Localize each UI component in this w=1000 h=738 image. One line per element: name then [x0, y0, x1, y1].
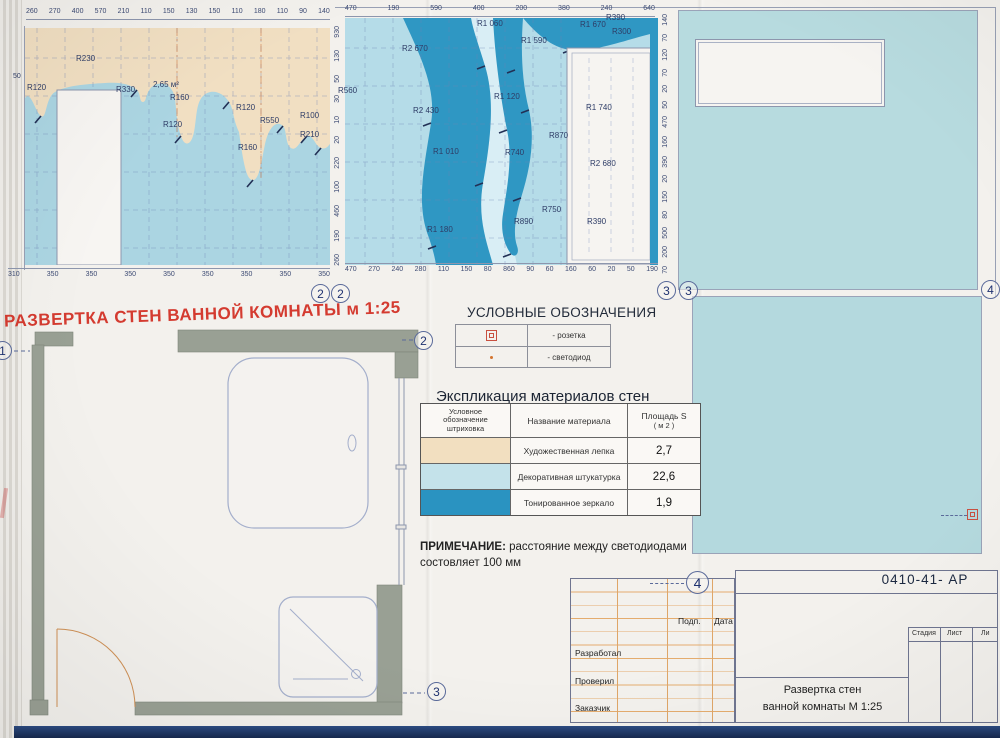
- marker-number: 2: [420, 334, 427, 348]
- column-sign: Подп.: [678, 616, 701, 626]
- dimension-value: 350: [86, 271, 98, 278]
- column-date: Дата: [714, 616, 733, 626]
- material-area: 22,6: [628, 464, 700, 489]
- dimension-value: 10: [334, 116, 341, 124]
- material-swatch: [421, 490, 511, 515]
- shower-tray: [279, 597, 377, 697]
- dimension-value: 150: [461, 266, 473, 273]
- dimension-value: 380: [558, 5, 570, 12]
- dimension-value: 140: [318, 8, 330, 15]
- dimension-value: 400: [72, 8, 84, 15]
- titleblock-gridline: [712, 579, 713, 722]
- material-name: Художественная лепка: [511, 438, 628, 463]
- door-swing: [57, 629, 135, 707]
- dimension-line: [8, 268, 330, 269]
- materials-row: Декоративная штукатурка 22,6: [421, 463, 700, 489]
- radius-label: R120: [236, 103, 255, 112]
- dimension-value: 640: [643, 5, 655, 12]
- dimension-value: 180: [254, 8, 266, 15]
- radius-label: R390: [606, 13, 625, 22]
- dimension-value: 270: [49, 8, 61, 15]
- plan-marker: 2: [414, 331, 433, 350]
- elev1-bottom-dimensions: 310350350350350350350350350: [8, 271, 330, 278]
- column-stage: Стадия: [912, 630, 936, 637]
- dimension-value: 120: [662, 49, 669, 61]
- radius-label: R2 680: [590, 159, 616, 168]
- dimension-value: 60: [588, 266, 596, 273]
- dimension-value: 460: [334, 205, 341, 217]
- radius-label: R1 010: [433, 147, 459, 156]
- legend-table: - розетка - светодиод: [455, 324, 611, 368]
- marker-number: 2: [317, 287, 324, 301]
- dimension-value: 160: [662, 136, 669, 148]
- dimension-value: 160: [565, 266, 577, 273]
- header-text: Площадь S: [641, 411, 686, 421]
- dimension-value: 240: [391, 266, 403, 273]
- dimension-value: 190: [388, 5, 400, 12]
- legend-heading: УСЛОВНЫЕ ОБОЗНАЧЕНИЯ: [467, 305, 656, 320]
- radius-label: R550: [260, 116, 279, 125]
- radius-label: R1 180: [427, 225, 453, 234]
- titleblock-line: [735, 677, 908, 678]
- dimension-line: [345, 263, 658, 264]
- dimension-value: 110: [140, 8, 151, 15]
- materials-row: Тонированное зеркало 1,9: [421, 489, 700, 515]
- dimension-value: 350: [279, 271, 291, 278]
- legend-row: - розетка: [456, 325, 610, 346]
- radius-label: R1 670: [580, 20, 606, 29]
- led-icon: [456, 347, 528, 367]
- mirror-niche: [695, 39, 885, 107]
- dimension-value: 260: [26, 8, 38, 15]
- dimension-value: 200: [662, 246, 669, 258]
- material-area: 1,9: [628, 490, 700, 515]
- table-surface-edge: [14, 726, 1000, 738]
- dimension-value: 20: [334, 136, 341, 144]
- header-hatching: Условное обозначение штриховка: [421, 404, 511, 437]
- radius-label: R1 060: [477, 19, 503, 28]
- elevation-1-wall-drawing: [25, 28, 330, 265]
- radius-label: R330: [116, 85, 135, 94]
- dimension-value: 470: [345, 5, 357, 12]
- radius-label: R1 120: [494, 92, 520, 101]
- dimension-value: 70: [662, 34, 669, 42]
- radius-label: R560: [338, 86, 357, 95]
- column-sheet: Лист: [947, 630, 962, 637]
- dimension-value: 80: [662, 211, 669, 219]
- dimension-value: 50: [662, 101, 669, 109]
- dimension-value: 90: [299, 8, 307, 15]
- section-marker: 4: [981, 280, 1000, 299]
- document-title-line: Развертка стен: [784, 684, 862, 696]
- dimension-value: 70: [662, 69, 669, 77]
- radius-label: R870: [549, 131, 568, 140]
- radius-label: R740: [505, 148, 524, 157]
- titleblock-line: [908, 641, 998, 642]
- materials-table: Условное обозначение штриховка Название …: [420, 403, 701, 516]
- dimension-value: 270: [368, 266, 380, 273]
- legend-label: - розетка: [528, 325, 610, 346]
- section-marker: 4: [686, 571, 709, 594]
- dimension-value: 260: [334, 254, 341, 266]
- radius-label: R160: [170, 93, 189, 102]
- dimension-value: 20: [608, 266, 616, 273]
- elev2-top-dimensions: 470190590400200380240640: [345, 5, 655, 12]
- door-opening: [57, 90, 121, 265]
- titleblock-line: [908, 627, 998, 628]
- material-name: Декоративная штукатурка: [511, 464, 628, 489]
- sheet-frame-right: [995, 7, 996, 297]
- dimension-value: 400: [473, 5, 485, 12]
- materials-row: Художественная лепка 2,7: [421, 437, 700, 463]
- material-area: 2,7: [628, 438, 700, 463]
- radius-label: R890: [514, 217, 533, 226]
- area-label: 2,65 м²: [153, 80, 179, 89]
- note: ПРИМЕЧАНИЕ: расстояние между светодиодам…: [420, 540, 730, 571]
- legend-label: - светодиод: [528, 347, 610, 367]
- plan-marker: 3: [427, 682, 446, 701]
- titleblock-line: [908, 627, 909, 723]
- dimension-value: 50: [334, 75, 341, 83]
- header-material-name: Название материала: [511, 404, 628, 437]
- dimension-value: 80: [484, 266, 492, 273]
- dimension-value: 150: [163, 8, 175, 15]
- radius-label: R750: [542, 205, 561, 214]
- legend-row: - светодиод: [456, 346, 610, 367]
- note-label: ПРИМЕЧАНИЕ:: [420, 541, 506, 553]
- elev1-top-dimensions: 2602704005702101101501301501101801109014…: [26, 8, 330, 15]
- dimension-value: 350: [318, 271, 330, 278]
- header-text: штриховка: [447, 425, 484, 434]
- mirror-edge-strip: [650, 32, 658, 265]
- socket-icon: [456, 325, 528, 346]
- elev2-bottom-dimensions: 470270240280110150808609060160602050190: [345, 266, 658, 273]
- marker-number: 4: [694, 575, 702, 591]
- row-customer: Заказчик: [575, 703, 610, 713]
- marker-number: 3: [663, 284, 670, 298]
- socket-leader: [941, 515, 967, 516]
- dimension-value: 280: [415, 266, 427, 273]
- dim-label: 50: [13, 73, 21, 80]
- column-sheets: Ли: [981, 630, 990, 637]
- dimension-value: 350: [163, 271, 175, 278]
- dimension-value: 350: [241, 271, 253, 278]
- dimension-value: 90: [526, 266, 534, 273]
- dimension-value: 470: [345, 266, 357, 273]
- radius-label: R160: [238, 143, 257, 152]
- dimension-value: 20: [662, 85, 669, 93]
- socket-icon: [967, 509, 978, 520]
- elev2-side-dimensions: 14070120702050470160390201508050020070: [659, 14, 671, 274]
- dimension-value: 190: [646, 266, 658, 273]
- dimension-value: 310: [8, 271, 20, 278]
- project-code: 0410-41- АР: [860, 572, 990, 587]
- section-marker: 3: [679, 281, 698, 300]
- dimension-value: 860: [503, 266, 515, 273]
- material-name: Тонированное зеркало: [511, 490, 628, 515]
- titleblock-line: [972, 627, 973, 723]
- dimension-value: 140: [662, 14, 669, 26]
- marker-number: 2: [337, 287, 344, 301]
- dimension-value: 930: [334, 26, 341, 38]
- radius-label: R210: [300, 130, 319, 139]
- radius-label: R2 670: [402, 44, 428, 53]
- titleblock-gridline: [667, 579, 668, 722]
- radius-label: R2 430: [413, 106, 439, 115]
- radius-label: R1 590: [521, 36, 547, 45]
- dimension-value: 100: [334, 181, 341, 193]
- dimension-value: 350: [124, 271, 136, 278]
- photo-of-architectural-drawing: 2602704005702101101501301501101801109014…: [0, 0, 1000, 738]
- bathtub: [228, 358, 368, 528]
- dimension-value: 390: [662, 156, 669, 168]
- dimension-value: 150: [662, 191, 669, 203]
- note-text: состовляет 100 мм: [420, 557, 521, 569]
- elevation-4-wall-panel: [692, 296, 982, 554]
- radius-label: R230: [76, 54, 95, 63]
- radius-label: R390: [587, 217, 606, 226]
- dimension-value: 470: [662, 116, 669, 128]
- elevation-2-wall-drawing: [345, 18, 658, 265]
- radius-label: R300: [612, 27, 631, 36]
- marker-number: 1: [0, 344, 6, 358]
- marker-number: 3: [433, 685, 440, 699]
- document-title-line: ванной комнаты М 1:25: [763, 701, 883, 713]
- dimension-value: 240: [601, 5, 613, 12]
- document-title: Развертка стен ванной комнаты М 1:25: [745, 682, 900, 715]
- dimension-value: 570: [95, 8, 107, 15]
- dimension-value: 130: [334, 50, 341, 62]
- row-checked: Проверил: [575, 676, 614, 686]
- marker-leader: [650, 583, 684, 584]
- floor-plan: [0, 325, 450, 725]
- dimension-value: 190: [334, 230, 341, 242]
- dimension-value: 210: [118, 8, 130, 15]
- radius-label: R120: [27, 83, 46, 92]
- glass-partition: [396, 378, 406, 585]
- dimension-value: 110: [232, 8, 243, 15]
- header-area: Площадь S ( м 2 ): [628, 404, 700, 437]
- dimension-value: 350: [202, 271, 214, 278]
- dimension-value: 110: [277, 8, 288, 15]
- dimension-value: 110: [438, 266, 449, 273]
- note-text: расстояние между светодиодами: [509, 541, 687, 553]
- dimension-value: 150: [209, 8, 221, 15]
- section-marker: 3: [657, 281, 676, 300]
- radius-label: R1 740: [586, 103, 612, 112]
- dimension-value: 70: [662, 266, 669, 274]
- marker-number: 3: [685, 284, 692, 298]
- marker-number: 4: [987, 283, 994, 297]
- material-swatch: [421, 438, 511, 463]
- elevation-3-wall-panel: [678, 10, 978, 290]
- radius-label: R100: [300, 111, 319, 120]
- dimension-value: 200: [515, 5, 527, 12]
- titleblock-line: [940, 627, 941, 723]
- materials-header-row: Условное обозначение штриховка Название …: [421, 404, 700, 437]
- header-text: ( м 2 ): [654, 421, 675, 430]
- dimension-value: 220: [334, 157, 341, 169]
- dimension-line: [26, 19, 330, 20]
- material-swatch: [421, 464, 511, 489]
- radius-label: R120: [163, 120, 182, 129]
- dimension-value: 130: [186, 8, 198, 15]
- elev1-side-dimensions: 93013050301020220100460190260: [331, 26, 343, 266]
- dimension-value: 500: [662, 227, 669, 239]
- dimension-value: 590: [430, 5, 442, 12]
- titleblock-line: [735, 593, 998, 594]
- row-developed: Разработал: [575, 648, 621, 658]
- dimension-value: 350: [47, 271, 59, 278]
- dimension-value: 50: [627, 266, 635, 273]
- dimension-value: 60: [546, 266, 554, 273]
- dimension-value: 20: [662, 175, 669, 183]
- dimension-value: 30: [334, 95, 341, 103]
